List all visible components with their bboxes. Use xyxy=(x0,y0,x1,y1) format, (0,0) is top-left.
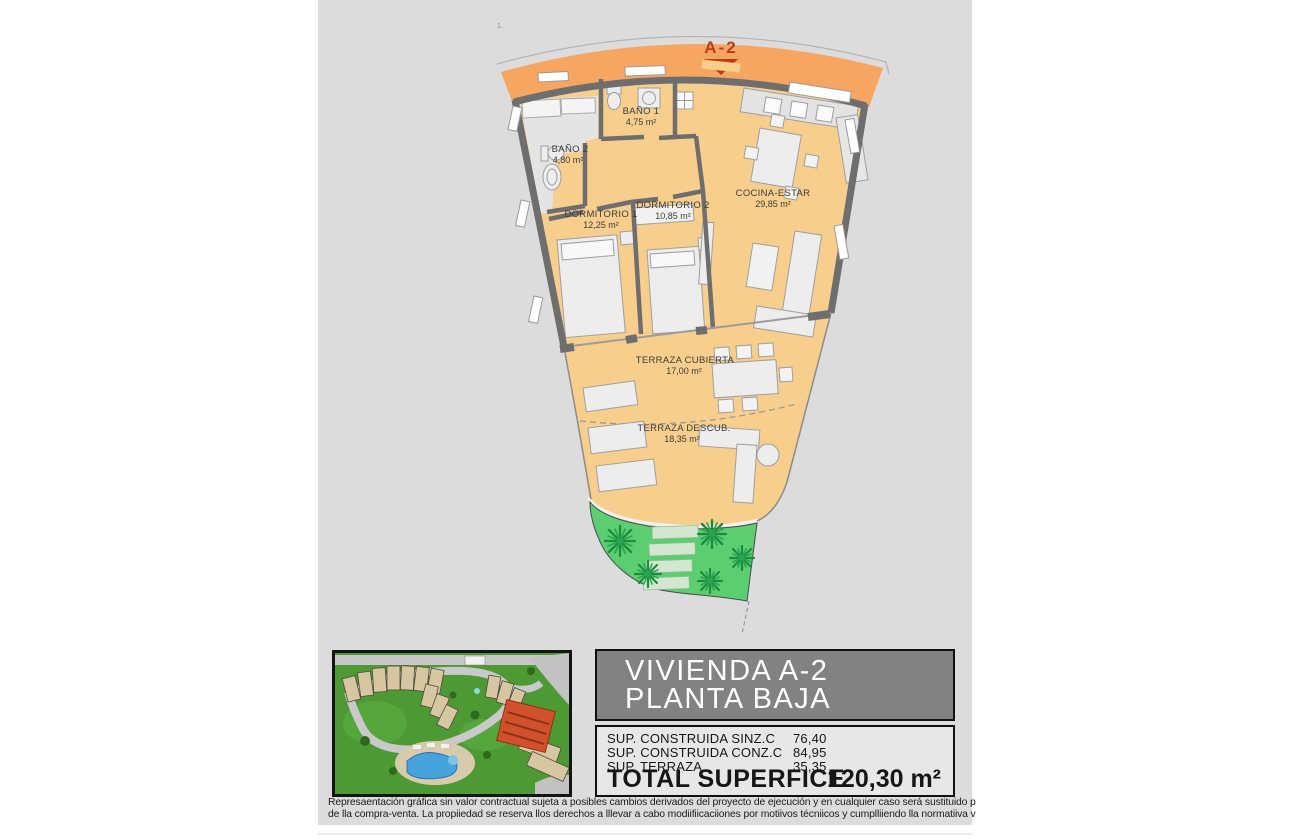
room-area-dorm2: 10,85 m² xyxy=(655,211,691,221)
total-value: 120,30 m² xyxy=(827,765,941,794)
sitemap-entry-marker xyxy=(465,656,485,665)
surface-value: 84,95 xyxy=(793,745,827,760)
banio1-toilet xyxy=(607,86,621,110)
title-block: VIVIENDA A-2 PLANTA BAJA xyxy=(595,649,955,721)
surface-row: SUP. CONSTRUIDA CONZ.C 84,95 xyxy=(607,745,782,760)
palm-tree-icon xyxy=(635,561,661,587)
surface-row: SUP. CONSTRUIDA SINZ.C 76,40 xyxy=(607,731,775,746)
room-area-banio2: 4,80 m² xyxy=(553,155,584,165)
room-label-dorm2: DORMITORIO 2 xyxy=(636,200,709,211)
room-area-cocina: 29,85 m² xyxy=(755,199,791,209)
disclaimer: Represaentación gráfica sin valor contra… xyxy=(328,797,976,822)
room-label-terraza-cubierta: TERRAZA CUBIERTA xyxy=(636,355,735,366)
room-area-dorm1: 12,25 m² xyxy=(583,220,619,230)
banio2-tub xyxy=(543,164,561,190)
entrance-opening xyxy=(702,64,740,68)
room-label-dorm1: DORMITORIO 1 xyxy=(564,209,637,220)
total-label: TOTAL SUPERFICE xyxy=(607,765,845,794)
palm-tree-icon xyxy=(605,526,635,556)
site-map xyxy=(332,650,572,797)
shower-grid xyxy=(676,92,693,109)
palm-tree-icon xyxy=(698,569,722,593)
plot-boundary-dashed xyxy=(742,601,749,634)
surface-label: SUP. CONSTRUIDA CONZ.C xyxy=(607,745,782,760)
room-area-terraza-descubierta: 18,35 m² xyxy=(664,434,700,444)
unit-marker-label: A-2 xyxy=(704,38,737,57)
room-area-banio1: 4,75 m² xyxy=(626,117,657,127)
title-line-2: PLANTA BAJA xyxy=(625,685,953,713)
plan-page: 1. A-2 xyxy=(318,0,972,825)
palm-tree-icon xyxy=(730,546,754,570)
plot-corner-mark: 1. xyxy=(497,23,503,30)
footer-rule xyxy=(318,833,972,835)
room-label-terraza-descubierta: TERRAZA DESCUB. xyxy=(637,423,730,434)
palm-tree-icon xyxy=(698,520,726,548)
surface-value: 76,40 xyxy=(793,731,827,746)
room-label-cocina: COCINA-ESTAR xyxy=(736,188,811,199)
sitemap-fountain xyxy=(474,688,480,694)
sheet: 1. A-2 xyxy=(0,0,1290,840)
surface-table: SUP. CONSTRUIDA SINZ.C 76,40 SUP. CONSTR… xyxy=(595,725,955,797)
surface-label: SUP. CONSTRUIDA SINZ.C xyxy=(607,731,775,746)
banio1-sink xyxy=(638,88,660,108)
disclaimer-line-1: Represaentación gráfica sin valor contra… xyxy=(328,797,976,809)
disclaimer-line-2: de lla compra-venta. La propiiedad se re… xyxy=(328,809,976,821)
sitemap-pool-area xyxy=(395,741,475,785)
title-line-1: VIVIENDA A-2 xyxy=(625,657,953,685)
floor-plan: 1. A-2 xyxy=(318,0,972,650)
room-label-banio2: BAÑO 2 xyxy=(552,144,589,155)
room-area-terraza-cubierta: 17,00 m² xyxy=(666,366,702,376)
room-label-banio1: BAÑO 1 xyxy=(623,106,660,117)
